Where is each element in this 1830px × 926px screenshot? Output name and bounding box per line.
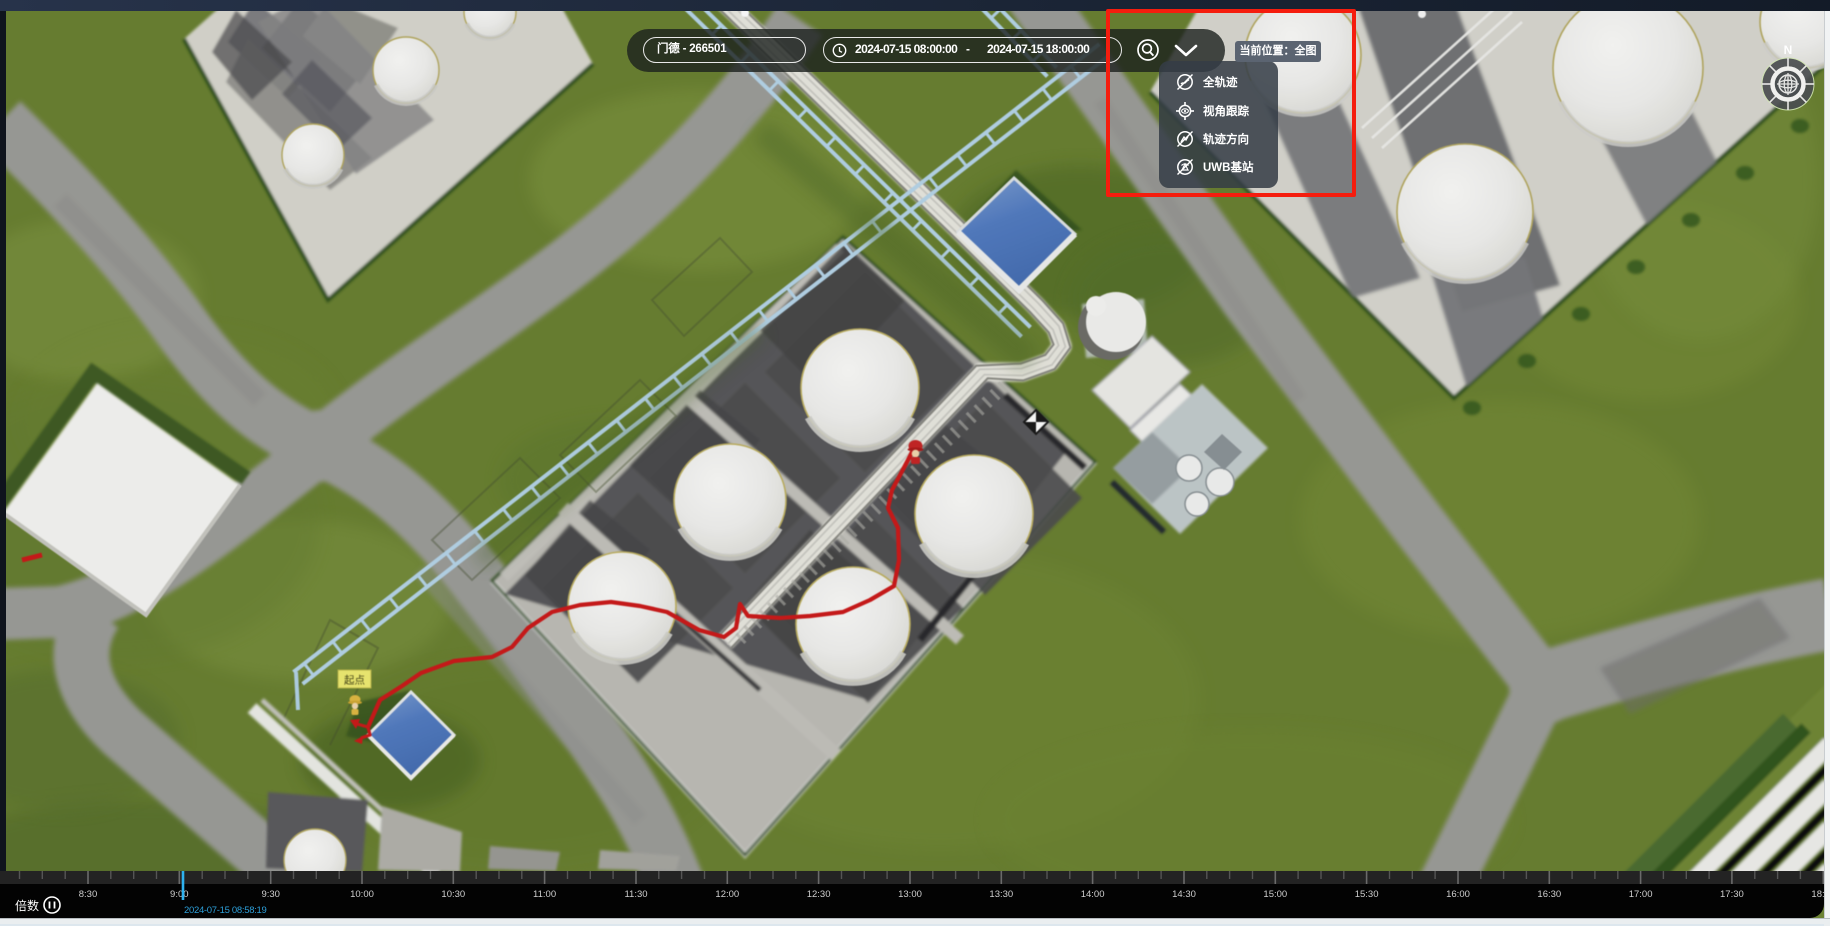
svg-text:11:00: 11:00 — [533, 889, 556, 900]
svg-text:17:30: 17:30 — [1720, 889, 1744, 900]
svg-text:10:30: 10:30 — [441, 889, 465, 900]
svg-text:12:00: 12:00 — [715, 889, 739, 900]
svg-text:17:00: 17:00 — [1629, 889, 1653, 900]
svg-text:起点: 起点 — [344, 675, 365, 687]
svg-text:2024-07-15 08:58:19: 2024-07-15 08:58:19 — [184, 905, 267, 916]
svg-text:N: N — [1784, 43, 1793, 57]
svg-text:18:00: 18:00 — [1811, 889, 1824, 900]
svg-text:9:00: 9:00 — [170, 889, 189, 900]
svg-text:15:00: 15:00 — [1263, 889, 1287, 900]
svg-text:14:00: 14:00 — [1081, 889, 1105, 900]
svg-text:9:30: 9:30 — [261, 889, 280, 900]
svg-text:倍数: 倍数 — [15, 898, 39, 913]
svg-text:16:30: 16:30 — [1537, 889, 1561, 900]
svg-text:8:30: 8:30 — [79, 889, 98, 900]
svg-text:16:00: 16:00 — [1446, 889, 1470, 900]
svg-text:12:30: 12:30 — [807, 889, 831, 900]
svg-text:13:00: 13:00 — [898, 889, 922, 900]
svg-text:13:30: 13:30 — [989, 889, 1013, 900]
svg-text:10:00: 10:00 — [350, 889, 374, 900]
svg-text:15:30: 15:30 — [1355, 889, 1379, 900]
svg-text:14:30: 14:30 — [1172, 889, 1196, 900]
svg-text:11:30: 11:30 — [624, 889, 647, 900]
